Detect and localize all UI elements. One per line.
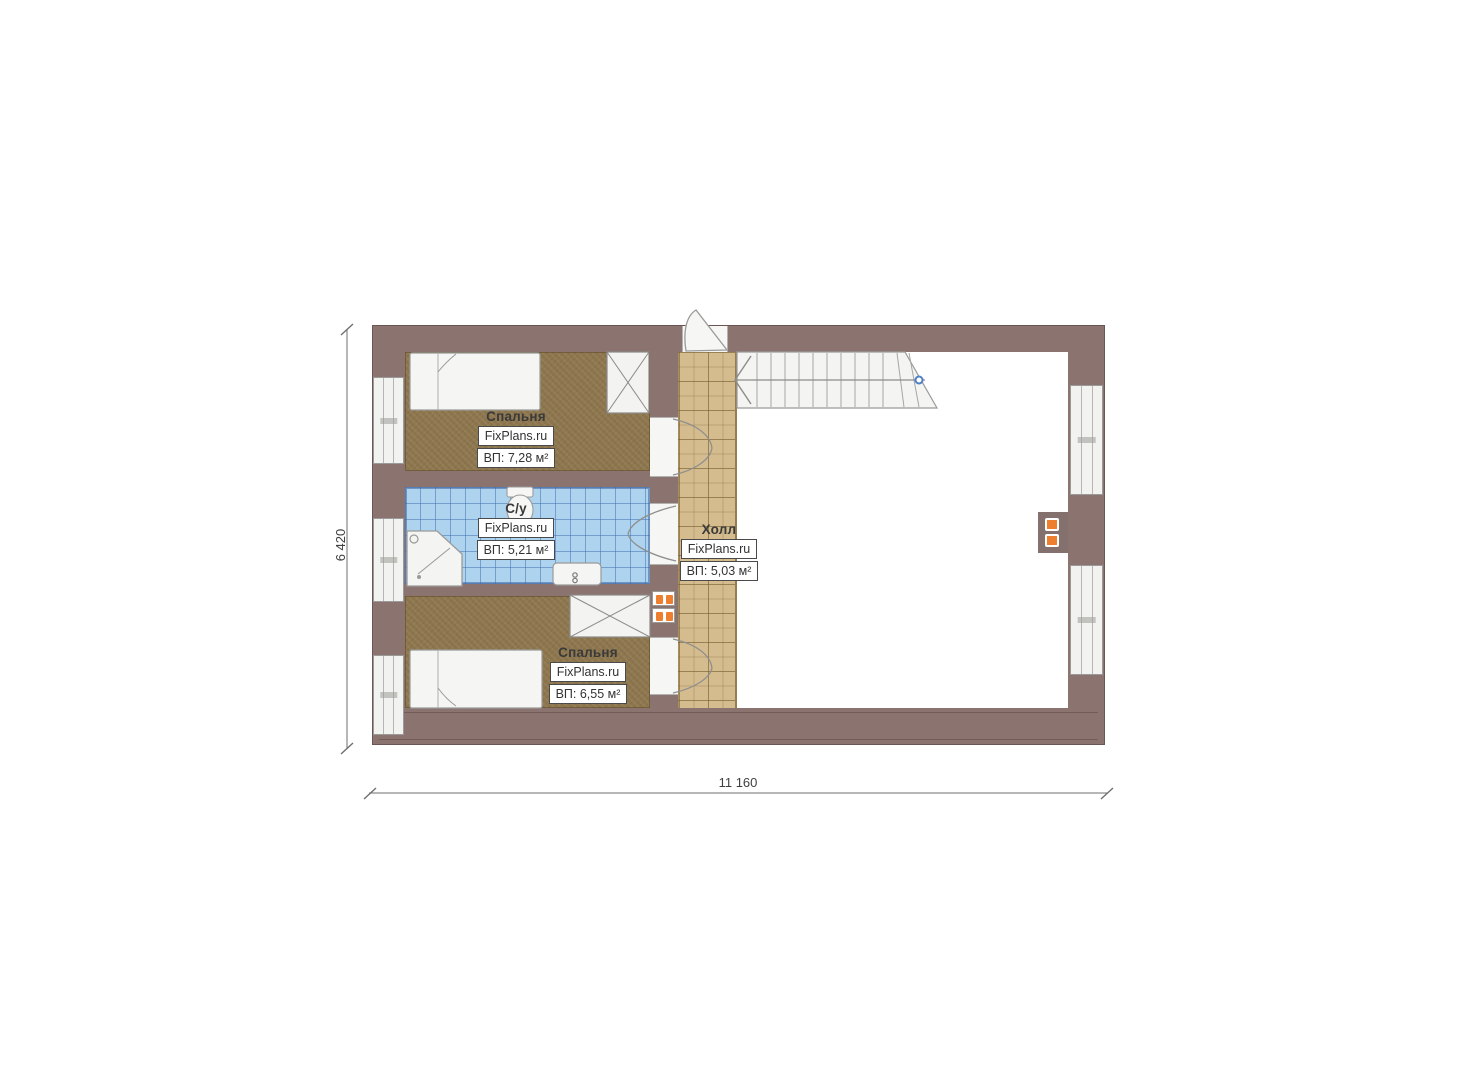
balcony-door-opening	[682, 326, 728, 352]
room-name: Спальня	[486, 409, 546, 424]
hall-partition-wall	[650, 477, 678, 503]
window	[373, 377, 404, 464]
radiator-element	[655, 594, 664, 605]
room-name: Спальня	[558, 645, 618, 660]
room-area-badge: ВП: 7,28 м²	[477, 448, 556, 468]
window	[373, 655, 404, 735]
hall-partition-wall	[650, 352, 678, 417]
radiator-element	[1045, 518, 1059, 531]
bedroom-top-door-opening	[650, 417, 678, 477]
room-area-badge: ВП: 6,55 м²	[549, 684, 628, 704]
room-label-bathroom: С/у FixPlans.ru ВП: 5,21 м²	[442, 501, 590, 560]
room-area-badge: ВП: 5,03 м²	[680, 561, 759, 581]
wall-edge-line	[379, 712, 1098, 713]
stair-direction-arrow	[735, 356, 751, 404]
watermark-badge: FixPlans.ru	[681, 539, 758, 559]
wall-edge-line	[379, 739, 1098, 740]
window	[373, 518, 404, 602]
window	[1070, 565, 1103, 675]
bedroom-bathroom-partition	[405, 471, 650, 487]
radiator-element	[665, 594, 674, 605]
radiator-element	[655, 611, 664, 622]
room-area-badge: ВП: 5,21 м²	[477, 540, 556, 560]
room-label-bedroom-bottom: Спальня FixPlans.ru ВП: 6,55 м²	[514, 645, 662, 704]
staircase	[735, 352, 937, 408]
bottom-exterior-wall	[372, 708, 1105, 745]
radiator-element	[665, 611, 674, 622]
hall-radiator	[652, 608, 675, 623]
room-name: Холл	[702, 522, 737, 537]
dimension-label-vertical: 6 420	[333, 515, 349, 575]
room-label-hall: Холл FixPlans.ru ВП: 5,03 м²	[645, 522, 793, 581]
window	[1070, 385, 1103, 495]
room-name: С/у	[505, 501, 527, 516]
radiator-element	[1045, 534, 1059, 547]
watermark-badge: FixPlans.ru	[478, 426, 555, 446]
right-wall-radiator	[1038, 512, 1068, 553]
room-label-bedroom-top: Спальня FixPlans.ru ВП: 7,28 м²	[442, 409, 590, 468]
hall-radiator	[652, 591, 675, 606]
bathroom-bedroom-partition	[405, 584, 650, 596]
watermark-badge: FixPlans.ru	[550, 662, 627, 682]
dimension-label-horizontal: 11 160	[708, 775, 768, 791]
stair-marker-icon	[916, 377, 923, 384]
top-exterior-wall	[372, 325, 1105, 352]
watermark-badge: FixPlans.ru	[478, 518, 555, 538]
floor-plan-canvas: Спальня FixPlans.ru ВП: 7,28 м² С/у FixP…	[0, 0, 1474, 1080]
